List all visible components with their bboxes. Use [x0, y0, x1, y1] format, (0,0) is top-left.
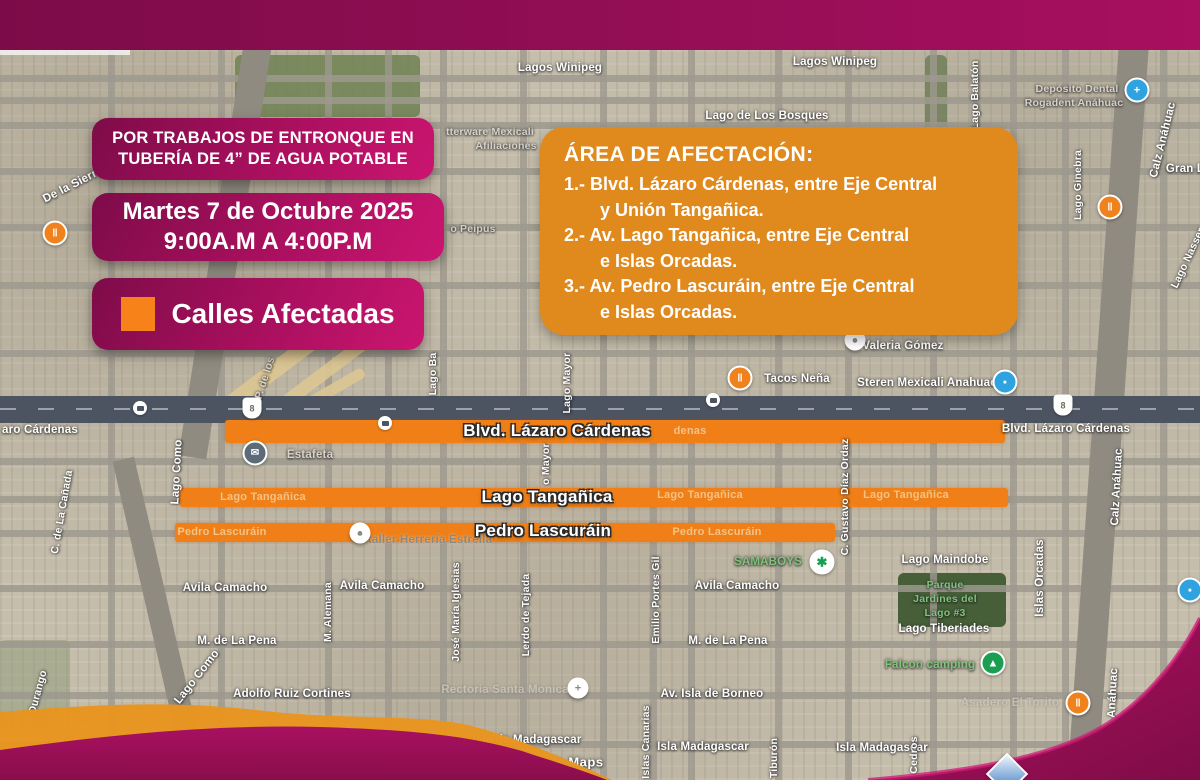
- map-label: o Mayor: [540, 443, 552, 485]
- overlay-label-pedro-lascurain: Pedro Lascuráin: [475, 521, 611, 541]
- map-label: denas: [674, 425, 707, 437]
- map-label: aro Cárdenas: [2, 424, 78, 436]
- map-label: Asadero El Torito: [961, 697, 1059, 709]
- affected-area-item: 1.- Blvd. Lázaro Cárdenas, entre Eje Cen…: [564, 172, 998, 223]
- schedule-time: 9:00A.M A 4:00P.M: [164, 227, 373, 257]
- map-label: Islas Canarias: [640, 705, 652, 778]
- map-label: Gran L: [1166, 163, 1200, 175]
- map-label: Estafeta: [287, 449, 333, 461]
- map-label: M. de La Pena: [197, 635, 276, 647]
- route-shield-icon: 8: [243, 398, 262, 419]
- schedule-box: Martes 7 de Octubre 2025 9:00A.M A 4:00P…: [92, 193, 444, 261]
- map-label: Tiburón: [768, 738, 780, 778]
- map-label: Lago #3: [924, 607, 965, 619]
- legend-box: Calles Afectadas: [92, 278, 424, 350]
- map-label: Lago Tangañica: [220, 491, 306, 503]
- map-label: Emilio Portes Gil: [650, 556, 662, 643]
- shopping-cart-icon: ▪: [1178, 578, 1200, 603]
- map-label: Rectoria Santa Monica: [441, 684, 569, 696]
- map-label: Adolfo Ruiz Cortines: [233, 688, 351, 700]
- map-label: Lago Tiberiades: [899, 623, 990, 635]
- legend-label: Calles Afectadas: [171, 298, 394, 330]
- map-label: M. Alemana: [322, 582, 334, 642]
- map-label: Isla Madagascar: [657, 741, 749, 753]
- map-label: Lago Mayor: [561, 353, 573, 414]
- bus-stop-icon: [378, 416, 392, 430]
- bus-stop-icon: [706, 393, 720, 407]
- schedule-date: Martes 7 de Octubre 2025: [123, 197, 414, 227]
- affected-area-panel: ÁREA DE AFECTACIÓN: 1.- Blvd. Lázaro Cár…: [540, 127, 1018, 335]
- map-label: Avila Camacho: [695, 580, 780, 592]
- map-label: Lago Tangañica: [657, 489, 743, 501]
- map-label: Steren Mexicali Anahuac: [857, 377, 997, 389]
- affected-area-item: 2.- Av. Lago Tangañica, entre Eje Centra…: [564, 223, 998, 274]
- map-label: Valeria Gómez: [862, 340, 943, 352]
- map-artifact-strip: [0, 50, 130, 55]
- church-pin-icon: +: [568, 678, 589, 699]
- affected-area-title: ÁREA DE AFECTACIÓN:: [564, 143, 998, 167]
- map-label: Afiliaciones: [475, 140, 536, 152]
- restaurant-icon: ‖: [1098, 195, 1123, 220]
- flyer-canvas: Lagos Winipeg Lagos Winipeg Lago de Los …: [0, 0, 1200, 780]
- map-label: M. de La Pena: [688, 635, 767, 647]
- map-label: Lago Ginebra: [1072, 150, 1084, 220]
- map-label: Tacos Neña: [764, 373, 830, 385]
- map-label: Depósito Dental: [1036, 83, 1119, 95]
- map-label: José María Iglesias: [450, 562, 462, 662]
- restaurant-icon: ‖: [728, 366, 753, 391]
- restaurant-icon: ‖: [1066, 691, 1091, 716]
- work-notice-line1: POR TRABAJOS DE ENTRONQUE EN: [112, 128, 414, 149]
- map-label: tterware Mexicali: [446, 126, 534, 138]
- camping-icon: ▲: [981, 651, 1006, 676]
- header-bar: [0, 0, 1200, 50]
- map-label: SAMABOYS: [734, 556, 802, 568]
- google-maps-watermark: Google Maps: [516, 755, 603, 770]
- map-label: Falcon camping: [885, 659, 975, 671]
- item-line: y Unión Tangañica.: [564, 198, 998, 224]
- map-label: C. Gustavo Díaz Ordaz: [839, 439, 851, 556]
- place-pin-icon: ●: [350, 523, 371, 544]
- route-shield-icon: 8: [1054, 395, 1073, 416]
- map-label: Lago Ba: [427, 353, 439, 396]
- map-label: Rogadent Anáhuac: [1025, 97, 1123, 109]
- map-label: Lago Maindobe: [902, 554, 989, 566]
- map-label: o Peipus: [450, 223, 495, 235]
- estafeta-mail-icon: ✉: [243, 441, 268, 466]
- map-label: Cedros: [908, 736, 920, 773]
- item-line: 2.- Av. Lago Tangañica, entre Eje Centra…: [564, 225, 909, 245]
- item-line: 3.- Av. Pedro Lascuráin, entre Eje Centr…: [564, 276, 914, 296]
- map-label: Lago Balatón: [969, 61, 981, 130]
- map-label: Lagos Winipeg: [793, 56, 877, 68]
- map-label: Av. Isla de Borneo: [661, 688, 764, 700]
- map-label: Jardines del: [913, 593, 977, 605]
- shopping-store-icon: ▪: [993, 370, 1018, 395]
- map-label: Lagos Winipeg: [518, 62, 602, 74]
- map-label: taller Herrería Estrella: [368, 534, 492, 546]
- legend-color-swatch: [121, 297, 155, 331]
- item-line: 1.- Blvd. Lázaro Cárdenas, entre Eje Cen…: [564, 174, 937, 194]
- map-label: Blvd. Lázaro Cárdenas: [1002, 423, 1130, 435]
- work-notice-line2: TUBERÍA DE 4” DE AGUA POTABLE: [118, 149, 408, 170]
- map-label: Parque: [927, 579, 964, 591]
- map-label: Lerdo de Tejada: [520, 574, 532, 657]
- bus-stop-icon: [133, 401, 147, 415]
- work-notice-box: POR TRABAJOS DE ENTRONQUE EN TUBERÍA DE …: [92, 118, 434, 180]
- item-line: e Islas Orcadas.: [564, 249, 998, 275]
- map-label: Isla de Madagascar: [472, 734, 581, 746]
- map-label: Avila Camacho: [183, 582, 268, 594]
- restaurant-icon: ‖: [43, 221, 68, 246]
- map-label: Pedro Lascuráin: [672, 526, 761, 538]
- road-lane-markings: [0, 408, 1200, 410]
- overlay-label-lago-tanganica: Lago Tangañica: [482, 487, 613, 507]
- satellite-map: [0, 0, 1200, 780]
- map-label: Lago Tangañica: [863, 489, 949, 501]
- dental-store-icon: +: [1125, 78, 1150, 103]
- map-label: Islas Orcadas: [1034, 539, 1046, 616]
- overlay-label-blvd-lazaro-cardenas: Blvd. Lázaro Cárdenas: [463, 421, 650, 441]
- map-label: Avila Camacho: [340, 580, 425, 592]
- map-label: Pedro Lascuráin: [177, 526, 266, 538]
- item-line: e Islas Orcadas.: [564, 300, 998, 326]
- map-label: Lago de Los Bosques: [705, 110, 828, 122]
- flower-shop-icon: ✱: [810, 550, 835, 575]
- affected-area-item: 3.- Av. Pedro Lascuráin, entre Eje Centr…: [564, 274, 998, 325]
